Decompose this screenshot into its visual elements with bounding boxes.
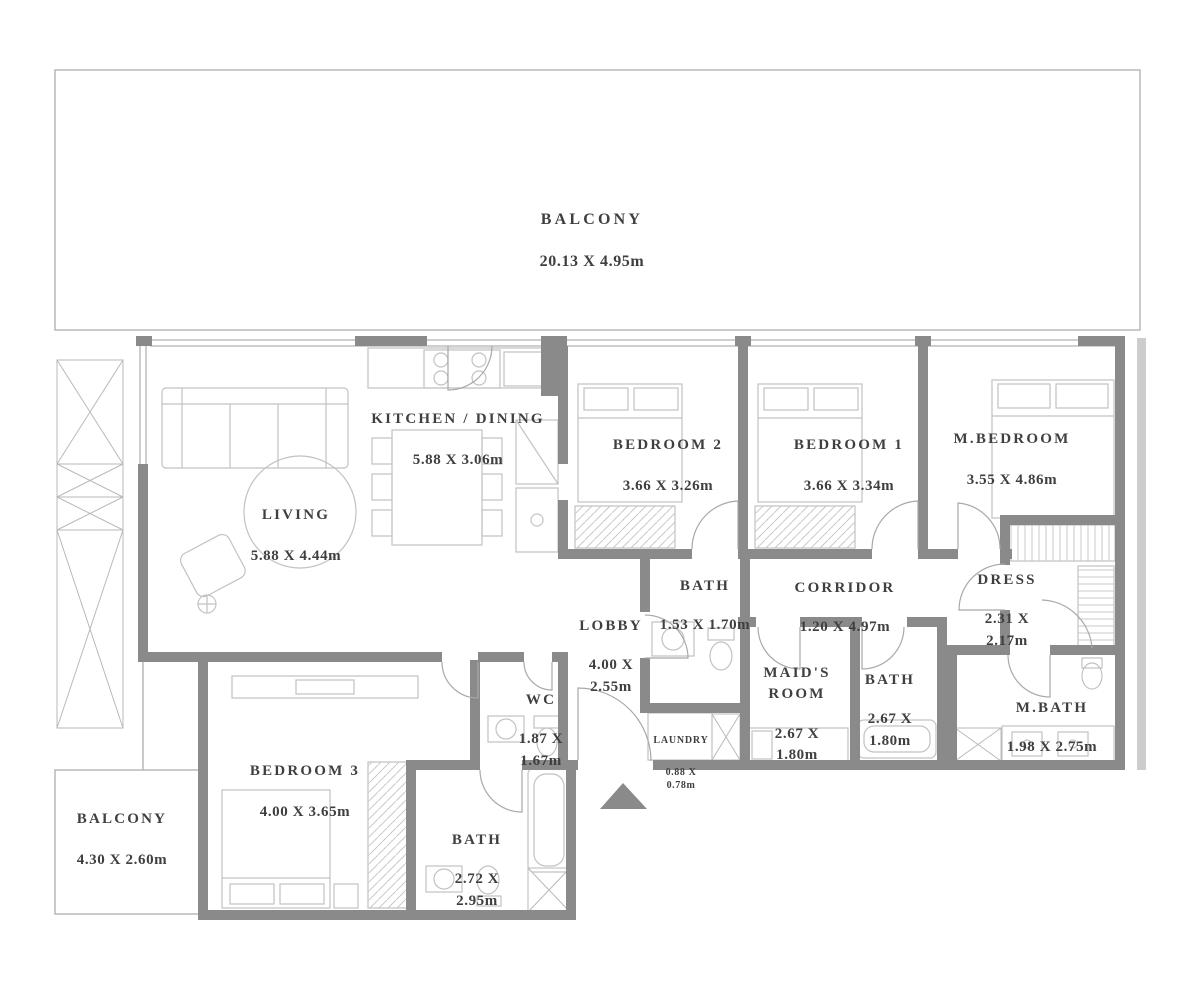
room-label-bath-maid: BATH 2.67 X 1.80m [865, 652, 915, 770]
room-label-m-bath: M.BATH 1.98 X 2.75m [1007, 680, 1098, 777]
floor-plan: BALCONY 20.13 X 4.95m KITCHEN / DINING 5… [0, 0, 1197, 989]
room-label-living: LIVING 5.88 X 4.44m [251, 486, 342, 585]
room-label-bedroom-2: BEDROOM 2 3.66 X 3.26m [613, 416, 723, 515]
room-label-corridor: CORRIDOR 1.20 X 4.97m [795, 560, 896, 657]
entrance-arrow-icon [600, 783, 647, 809]
room-label-laundry: LAUNDRY 0.88 X 0.78m [653, 716, 708, 811]
room-label-wc: WC 1.87 X 1.67m [519, 672, 563, 790]
room-label-bedroom-3: BEDROOM 3 4.00 X 3.65m [250, 742, 360, 841]
room-label-bath-bedroom3: BATH 2.72 X 2.95m [452, 812, 502, 930]
room-label-balcony-top: BALCONY 20.13 X 4.95m [540, 190, 645, 292]
room-label-bath-hall: BATH 1.53 X 1.70m [660, 558, 751, 655]
room-label-maids-room: MAID'S ROOM 2.67 X 1.80m [763, 645, 830, 784]
room-label-dress: DRESS 2.31 X 2.17m [977, 552, 1036, 670]
room-label-lobby: LOBBY 4.00 X 2.55m [579, 598, 643, 716]
room-label-balcony-lower: BALCONY 4.30 X 2.60m [77, 790, 168, 889]
room-label-bedroom-1: BEDROOM 1 3.66 X 3.34m [794, 416, 904, 515]
room-label-m-bedroom: M.BEDROOM 3.55 X 4.86m [954, 410, 1071, 509]
adjacent-wall-band [1137, 338, 1146, 770]
room-label-kitchen-dining: KITCHEN / DINING 5.88 X 3.06m [371, 390, 545, 489]
